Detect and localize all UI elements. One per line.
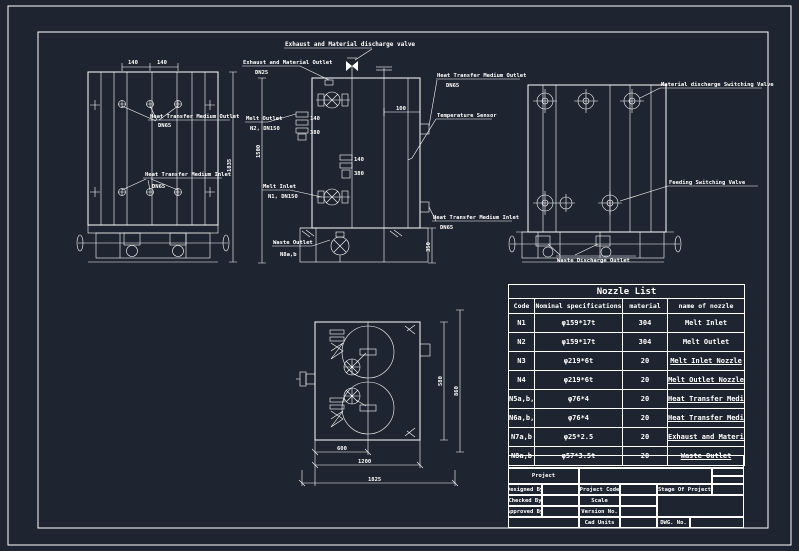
- feeding-valve-leader: [620, 186, 758, 201]
- dim-100: 100: [396, 106, 406, 112]
- exhaust-outlet-dn: DN25: [255, 70, 268, 76]
- table-cell: φ159*17t: [535, 314, 623, 333]
- table-cell: N1: [509, 314, 535, 333]
- plan-right-stub: [420, 344, 430, 356]
- htm-outlet-label: Heat Transfer Medium Outlet: [437, 73, 526, 79]
- dwg-no-value: [690, 517, 744, 528]
- table-row: N6a,b,cφ76*420Heat Transfer Medium Outle…: [509, 409, 745, 428]
- front-base: [77, 225, 229, 262]
- waste-outlet-dn: N8a,b: [280, 252, 297, 258]
- cad-units-label: Cad Units: [579, 517, 620, 528]
- plan-dim-860: 860: [454, 386, 460, 396]
- table-cell: φ219*6t: [535, 371, 623, 390]
- melt-outlet-dn: N2, DN150: [250, 126, 280, 132]
- dwg-no-label: DWG. No.: [657, 517, 690, 528]
- table-cell: Exhaust and Material Outlet: [668, 428, 745, 447]
- stage-value: [712, 484, 744, 495]
- plan-dim-600: 600: [337, 446, 347, 452]
- table-cell: 20: [623, 390, 668, 409]
- table-cell: φ76*4: [535, 390, 623, 409]
- designed-by-value: [542, 484, 579, 495]
- table-cell: N3: [509, 352, 535, 371]
- top-flange-fitting: [376, 67, 392, 78]
- elev-left-dim: [258, 78, 266, 263]
- rev-cell-b: [712, 476, 744, 484]
- temp-sensor-label: Temperature Sensor: [437, 113, 497, 119]
- drain-label: Waste Discharge Outlet: [557, 258, 630, 264]
- htm-outlet-dn: DN65: [446, 83, 459, 89]
- project-label-cell: Project: [508, 468, 579, 484]
- table-cell: φ25*2.5: [535, 428, 623, 447]
- view-side-elevation: Material discharge Switching Valve Feedi…: [509, 82, 774, 264]
- table-row: N1φ159*17t304Melt Inlet: [509, 314, 745, 333]
- cad-drawing-sheet: Heat Transfer Medium Outlet DN65 Heat Tr…: [0, 0, 799, 551]
- table-cell: 20: [623, 428, 668, 447]
- elev-dim-left: 1500: [256, 145, 262, 158]
- front-dim-top-b: 140: [157, 60, 167, 66]
- plan-left-valves: [330, 330, 344, 427]
- bottom-left-cell: [508, 517, 579, 528]
- htm-outlet-stub: [420, 79, 520, 134]
- scale-value: [620, 495, 657, 506]
- col-header-spec: Nominal specifications: [535, 299, 623, 314]
- table-row: N7a,bφ25*2.520Exhaust and Material Outle…: [509, 428, 745, 447]
- approved-by-value: [542, 506, 579, 517]
- title-block: Project Designed By Project Code Stage O…: [508, 455, 744, 528]
- table-cell: N2: [509, 333, 535, 352]
- checked-by-value: [542, 495, 579, 506]
- plan-shell-circles: [342, 322, 394, 440]
- designed-by-label: Designed By: [508, 484, 542, 495]
- discharge-valve-label: Exhaust and Material discharge valve: [285, 41, 415, 48]
- plan-dim-1825: 1825: [368, 477, 381, 483]
- material-valve-leader: [640, 88, 762, 98]
- view-plan: 580 860 600 1200 1825: [296, 310, 464, 486]
- table-cell: 20: [623, 409, 668, 428]
- table-row: N5a,b,cφ76*420Heat Transfer Medium Inlet: [509, 390, 745, 409]
- table-row: N3φ219*6t20Melt Inlet Nozzle: [509, 352, 745, 371]
- stage-label: Stage Of Project: [657, 484, 712, 495]
- front-inlet-dn: DN65: [152, 184, 165, 190]
- scale-label: Scale: [579, 495, 620, 506]
- table-cell: φ219*6t: [535, 352, 623, 371]
- checked-by-label: Checked By: [508, 495, 542, 506]
- nozzle-table-title: Nozzle List: [509, 285, 745, 299]
- melt-outlet-label: Melt Outlet: [246, 116, 282, 122]
- table-cell: 20: [623, 371, 668, 390]
- plan-left-stub: [296, 372, 315, 386]
- rev-cell-a: [712, 468, 744, 476]
- table-cell: Heat Transfer Medium Inlet: [668, 390, 745, 409]
- front-outlet-label: Heat Transfer Medium Outlet: [150, 114, 239, 120]
- table-cell: 304: [623, 333, 668, 352]
- nozzle-list-table: Nozzle List Code Nominal specifications …: [508, 284, 745, 466]
- htm-inlet-dn: DN65: [440, 225, 453, 231]
- plan-valve-handwheels: [344, 353, 366, 406]
- dim-140-lower: 140: [354, 157, 364, 163]
- side-mid-nozzles: [533, 191, 622, 215]
- exhaust-outlet-label: Exhaust and Material Outlet: [243, 60, 332, 66]
- elev-base: [300, 228, 436, 263]
- table-cell: Melt Inlet: [668, 314, 745, 333]
- elev-dim-base: 350: [426, 242, 432, 252]
- nozzle-table-body: N1φ159*17t304Melt InletN2φ159*17t304Melt…: [509, 314, 745, 466]
- table-cell: Melt Inlet Nozzle: [668, 352, 745, 371]
- table-row: N4φ219*6t20Melt Outlet Nozzle: [509, 371, 745, 390]
- col-header-name: name of nozzle: [668, 299, 745, 314]
- htm-inlet-label: Heat Transfer Medium Inlet: [433, 215, 519, 221]
- melt-inlet-label: Melt Inlet: [263, 184, 296, 190]
- col-header-material: material: [623, 299, 668, 314]
- dim-380-lower: 380: [354, 171, 364, 177]
- leader: [355, 49, 372, 60]
- material-valve-label: Material discharge Switching Valve: [661, 82, 774, 88]
- view-main-elevation: Exhaust and Material discharge valve Exh…: [242, 41, 526, 263]
- version-no-label: Version No.: [579, 506, 620, 517]
- table-cell: N4: [509, 371, 535, 390]
- table-row: N2φ159*17t304Melt Outlet: [509, 333, 745, 352]
- project-code-value: [620, 484, 657, 495]
- version-no-value: [620, 506, 657, 517]
- table-cell: 304: [623, 314, 668, 333]
- drain-leader: [548, 244, 636, 256]
- table-cell: N5a,b,c: [509, 390, 535, 409]
- dim-140-upper: 140: [310, 116, 320, 122]
- project-code-label: Project Code: [579, 484, 620, 495]
- waste-outlet-label: Waste Outlet: [273, 240, 313, 246]
- approved-by-label: Approved By: [508, 506, 542, 517]
- table-cell: 20: [623, 352, 668, 371]
- drawing-title-cell: [657, 495, 744, 517]
- table-cell: φ76*4: [535, 409, 623, 428]
- cad-units-value: [620, 517, 657, 528]
- plan-dim-1200: 1200: [358, 459, 371, 465]
- htm-inlet-nozzles: [118, 178, 222, 196]
- temperature-sensor-leader: [408, 119, 492, 160]
- front-dim-top-a: 140: [128, 60, 138, 66]
- table-cell: N6a,b,c: [509, 409, 535, 428]
- dim-380-upper: 380: [310, 130, 320, 136]
- table-cell: Heat Transfer Medium Outlet: [668, 409, 745, 428]
- table-cell: N7a,b: [509, 428, 535, 447]
- melt-inlet-dn: N1, DN150: [268, 194, 298, 200]
- front-outlet-dn: DN65: [158, 123, 171, 129]
- front-dim-height: 1835: [227, 159, 233, 172]
- title-block-top-strip: [508, 455, 744, 468]
- view-front-elevation: Heat Transfer Medium Outlet DN65 Heat Tr…: [77, 60, 239, 262]
- table-cell: φ159*17t: [535, 333, 623, 352]
- project-value-cell: [579, 468, 712, 484]
- discharge-valve-symbol: [346, 58, 358, 78]
- plan-dim-580: 580: [438, 376, 444, 386]
- col-header-code: Code: [509, 299, 535, 314]
- side-top-nozzles: [533, 89, 644, 113]
- table-cell: Melt Outlet Nozzle: [668, 371, 745, 390]
- feeding-valve-label: Feeding Switching Valve: [669, 180, 746, 186]
- front-inlet-label: Heat Transfer Medium Inlet: [145, 172, 231, 178]
- table-cell: Melt Outlet: [668, 333, 745, 352]
